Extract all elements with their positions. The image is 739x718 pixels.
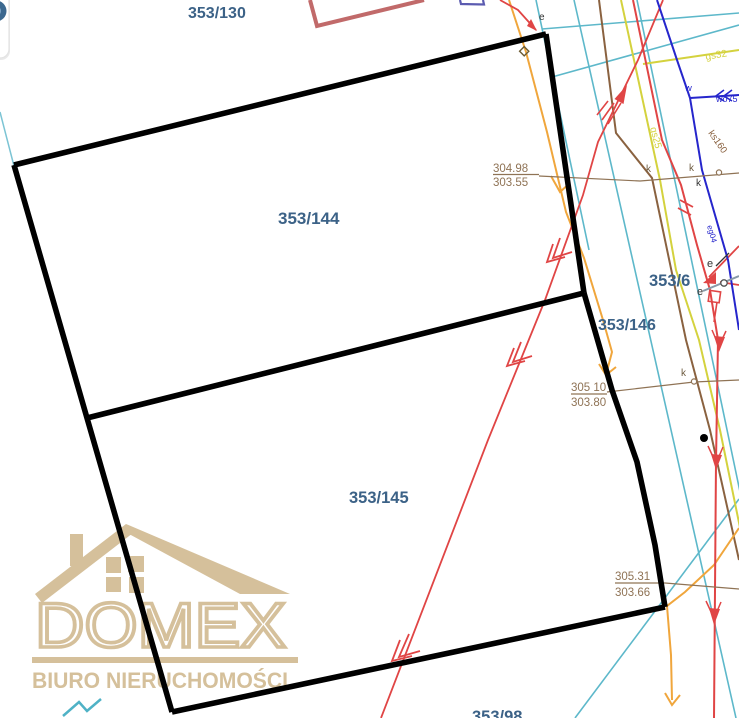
svg-text:DOMEX: DOMEX [35,591,286,661]
svg-text:303.66: 303.66 [615,587,650,599]
svg-text:303.55: 303.55 [493,177,528,189]
svg-text:305 10: 305 10 [571,382,606,394]
svg-text:353/144: 353/144 [278,209,340,228]
svg-text:w: w [684,83,692,94]
svg-text:e: e [697,286,703,298]
svg-text:304.98: 304.98 [493,163,528,175]
svg-text:e: e [707,258,713,270]
svg-text:353/6: 353/6 [649,272,690,290]
svg-text:wó75: wó75 [715,94,738,104]
svg-text:305.31: 305.31 [615,571,650,583]
svg-text:353/146: 353/146 [598,317,656,334]
svg-text:353/130: 353/130 [188,5,246,22]
svg-text:353/145: 353/145 [349,489,409,507]
svg-text:303.80: 303.80 [571,397,606,409]
svg-text:353/98: 353/98 [472,708,522,718]
svg-text:e: e [539,12,545,23]
